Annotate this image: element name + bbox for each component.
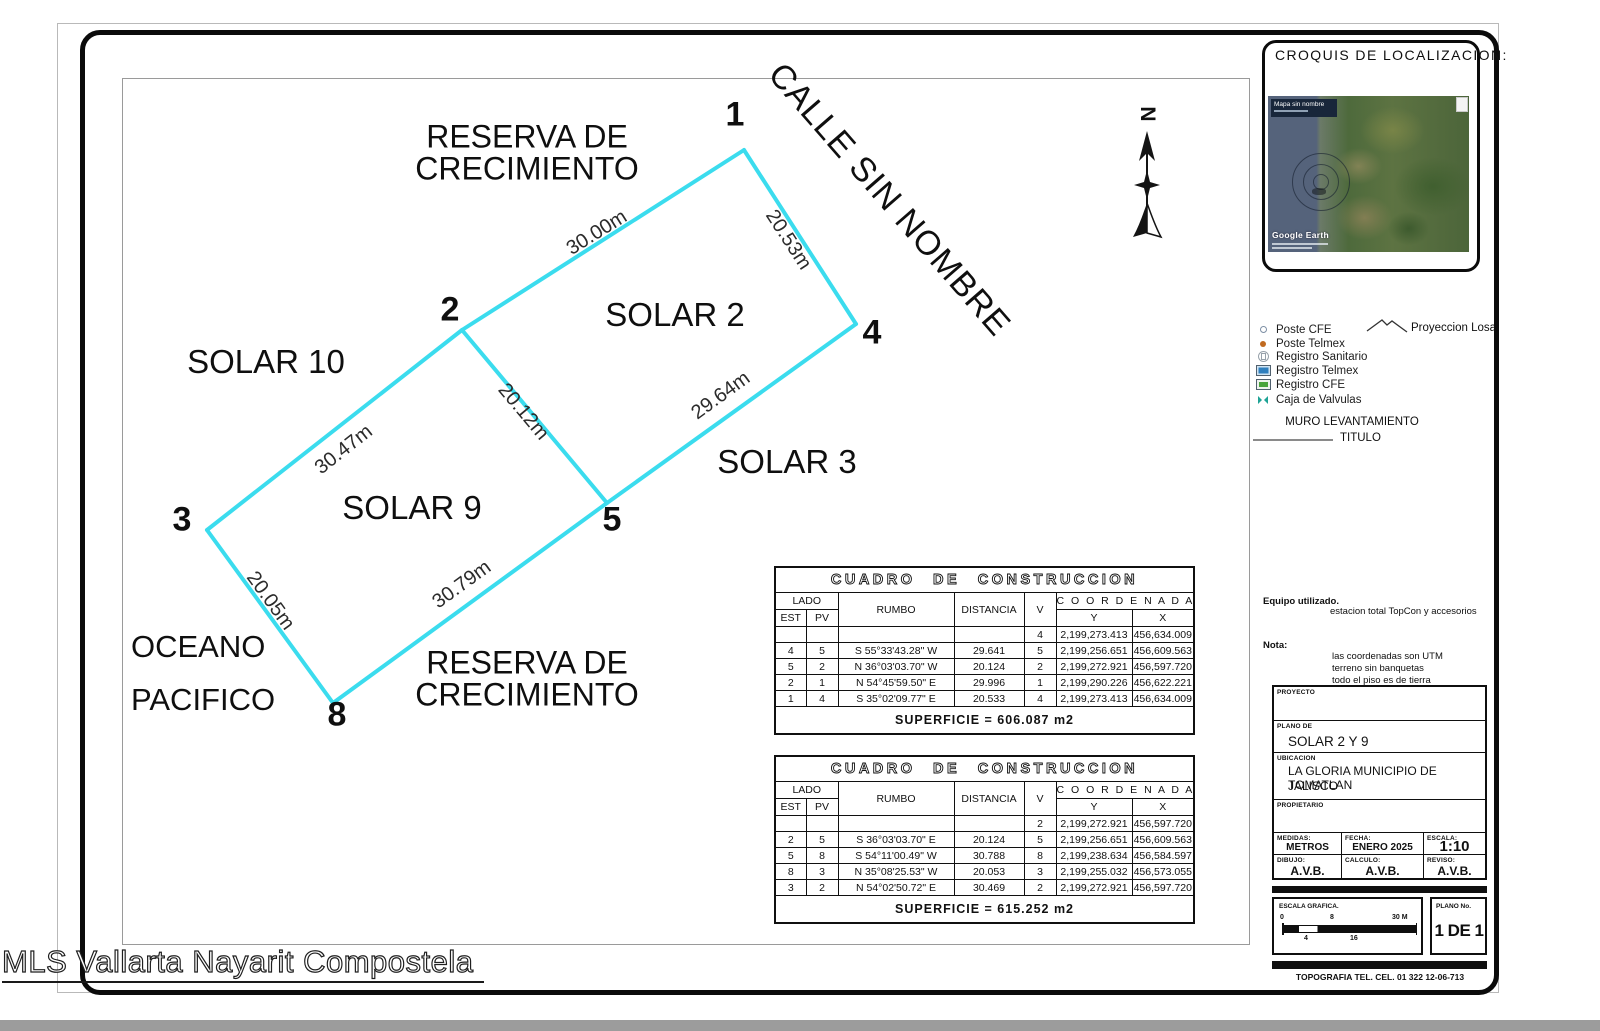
table-row: 3 2 N 54°02'50.72" E 30.469 2 2,199,272.… — [775, 880, 1194, 896]
table-row: 1 4 S 35°02'09.77" E 20.533 4 2,199,273.… — [775, 691, 1194, 707]
table-row: 5 8 S 54°11'00.49" W 30.788 8 2,199,238.… — [775, 848, 1194, 864]
oceano-label-line1: OCEANO — [131, 629, 265, 665]
cell-coord-x: 456,584.597 — [1132, 848, 1194, 864]
cell-est: 2 — [775, 675, 806, 691]
reserva-bottom-line2: CRECIMIENTO — [415, 677, 638, 714]
cell-pv: 3 — [806, 864, 838, 880]
vertex-2: 2 — [441, 291, 460, 330]
col-x: X — [1132, 799, 1194, 816]
col-y: Y — [1056, 610, 1132, 627]
cell-v: 2 — [1024, 816, 1056, 832]
cell-coord-y: 2,199,273.413 — [1056, 691, 1132, 707]
cell-pv: 8 — [806, 848, 838, 864]
table-row: 2 1 N 54°45'59.50" E 29.996 1 2,199,290.… — [775, 675, 1194, 691]
plano-de-value: SOLAR 2 Y 9 — [1288, 734, 1369, 749]
medidas-cell: MEDIDAS: METROS — [1274, 833, 1342, 854]
dibujo-calculo-reviso-row: DIBUJO: A.V.B. CALCULO: A.V.B. REVISO: A… — [1274, 855, 1485, 880]
col-lado: LADO — [775, 593, 838, 610]
nota-line1: las coordenadas son UTM — [1332, 651, 1443, 662]
registro-telmex-icon — [1250, 365, 1276, 376]
vertex-4: 4 — [863, 314, 882, 353]
cell-rumbo: N 36°03'03.70" W — [838, 659, 954, 675]
proyecto-row: PROYECTO — [1274, 687, 1485, 721]
cell-rumbo — [838, 627, 954, 643]
col-y: Y — [1056, 799, 1132, 816]
cell-coord-x: 456,597.720 — [1132, 816, 1194, 832]
cell-coord-y: 2,199,272.921 — [1056, 816, 1132, 832]
legend-caja-valvulas: Caja de Valvulas — [1250, 393, 1361, 406]
scale-bar — [1282, 925, 1417, 933]
cell-rumbo: S 54°11'00.49" W — [838, 848, 954, 864]
cell-pv: 2 — [806, 880, 838, 896]
col-est: EST — [775, 799, 806, 816]
cell-pv — [806, 627, 838, 643]
survey-plan-sheet: N RESERVA DE CRECIMIENTO CALLE SIN NOMBR… — [0, 0, 1600, 1031]
cell-est: 4 — [775, 643, 806, 659]
col-distancia: DISTANCIA — [954, 593, 1024, 627]
col-est: EST — [775, 610, 806, 627]
oceano-label-line2: PACIFICO — [131, 682, 275, 718]
cell-est: 5 — [775, 659, 806, 675]
superficie-total: SUPERFICIE = 606.087 m2 — [775, 707, 1194, 735]
legend-registro-cfe: Registro CFE — [1250, 378, 1345, 391]
legend-muro-levantamiento: MURO LEVANTAMIENTO — [1285, 416, 1419, 428]
cell-distancia: 20.533 — [954, 691, 1024, 707]
col-v: V — [1024, 782, 1056, 816]
col-pv: PV — [806, 610, 838, 627]
col-x: X — [1132, 610, 1194, 627]
col-lado: LADO — [775, 782, 838, 799]
escala-cell: ESCALA: 1:10 — [1424, 833, 1485, 854]
solar3-label: SOLAR 3 — [717, 443, 856, 481]
cell-rumbo: N 54°02'50.72" E — [838, 880, 954, 896]
cell-est: 5 — [775, 848, 806, 864]
cell-v: 3 — [1024, 864, 1056, 880]
dibujo-cell: DIBUJO: A.V.B. — [1274, 855, 1342, 880]
watermark: MLS Vallarta Nayarit Compostela — [2, 944, 484, 983]
cell-distancia: 20.053 — [954, 864, 1024, 880]
cell-rumbo: N 35°08'25.53" W — [838, 864, 954, 880]
reserva-top-line2: CRECIMIENTO — [415, 151, 638, 188]
vertex-8: 8 — [328, 696, 347, 735]
cell-coord-x: 456,609.563 — [1132, 832, 1194, 848]
solar9-label: SOLAR 9 — [342, 489, 481, 527]
cell-v: 4 — [1024, 691, 1056, 707]
cell-pv: 1 — [806, 675, 838, 691]
cell-pv: 5 — [806, 643, 838, 659]
table-row: 8 3 N 35°08'25.53" W 20.053 3 2,199,255.… — [775, 864, 1194, 880]
table-title: CUADRO DE CONSTRUCCION — [831, 572, 1138, 588]
col-rumbo: RUMBO — [838, 782, 954, 816]
divider-bar-bottom — [1272, 961, 1487, 969]
titulo-line — [1253, 439, 1333, 441]
calculo-cell: CALCULO: A.V.B. — [1342, 855, 1424, 880]
table-row: 4 2,199,273.413 456,634.009 — [775, 627, 1194, 643]
table-row: 4 5 S 55°33'43.28" W 29.641 5 2,199,256.… — [775, 643, 1194, 659]
cell-v: 5 — [1024, 832, 1056, 848]
cell-est: 2 — [775, 832, 806, 848]
cell-distancia: 30.788 — [954, 848, 1024, 864]
contact-line: TOPOGRAFIA TEL. CEL. 01 322 12-06-713 — [1296, 972, 1464, 982]
map-attribution-bar — [1272, 247, 1312, 249]
cell-distancia: 29.996 — [954, 675, 1024, 691]
north-letter: N — [1135, 106, 1159, 121]
cell-coord-x: 456,634.009 — [1132, 627, 1194, 643]
equipo-value: estacion total TopCon y accesorios — [1330, 606, 1477, 617]
registro-sanitario-icon — [1250, 351, 1276, 362]
coast-feature — [1312, 188, 1326, 195]
cell-coord-x: 456,622.221 — [1132, 675, 1194, 691]
cell-distancia: 20.124 — [954, 659, 1024, 675]
vertex-5: 5 — [603, 501, 622, 540]
cell-distancia: 30.469 — [954, 880, 1024, 896]
cell-est — [775, 816, 806, 832]
cell-est: 8 — [775, 864, 806, 880]
construction-table-1: CUADRO DE CONSTRUCCION LADO RUMBO DISTAN… — [774, 566, 1193, 735]
col-distancia: DISTANCIA — [954, 782, 1024, 816]
cell-est — [775, 627, 806, 643]
poste-telmex-icon — [1250, 341, 1276, 347]
nota-label: Nota: — [1263, 640, 1287, 651]
cell-distancia: 20.124 — [954, 832, 1024, 848]
vertex-3: 3 — [173, 501, 192, 540]
cell-distancia — [954, 816, 1024, 832]
caja-valvulas-icon — [1250, 395, 1276, 405]
equipo-label: Equipo utilizado. — [1263, 596, 1339, 607]
medidas-fecha-escala-row: MEDIDAS: METROS FECHA: ENERO 2025 ESCALA… — [1274, 833, 1485, 855]
satellite-map: Mapa sin nombre Google Earth — [1268, 96, 1469, 252]
ubicacion-value-line2: JALISCO — [1288, 779, 1338, 793]
table-title: CUADRO DE CONSTRUCCION — [831, 761, 1138, 777]
col-rumbo: RUMBO — [838, 593, 954, 627]
cell-coord-x: 456,597.720 — [1132, 880, 1194, 896]
cell-rumbo — [838, 816, 954, 832]
col-v: V — [1024, 593, 1056, 627]
cell-coord-y: 2,199,272.921 — [1056, 880, 1132, 896]
cell-coord-y: 2,199,290.226 — [1056, 675, 1132, 691]
cell-coord-y: 2,199,256.651 — [1056, 832, 1132, 848]
cell-v: 2 — [1024, 659, 1056, 675]
proyeccion-losa-icon — [1366, 317, 1408, 333]
cell-v: 5 — [1024, 643, 1056, 659]
cell-est: 1 — [775, 691, 806, 707]
legend-registro-telmex: Registro Telmex — [1250, 364, 1358, 377]
legend-titulo: TITULO — [1340, 432, 1381, 444]
cell-distancia: 29.641 — [954, 643, 1024, 659]
cell-v: 4 — [1024, 627, 1056, 643]
reviso-cell: REVISO: A.V.B. — [1424, 855, 1485, 880]
col-pv: PV — [806, 799, 838, 816]
cell-coord-y: 2,199,272.921 — [1056, 659, 1132, 675]
title-block: PROYECTO PLANO DE SOLAR 2 Y 9 UBICACION … — [1272, 685, 1487, 880]
map-corner-box — [1456, 97, 1468, 112]
croquis-title: CROQUIS DE LOCALIZACION: — [1275, 47, 1508, 63]
divider-bar-top — [1272, 886, 1487, 893]
cell-coord-x: 456,634.009 — [1132, 691, 1194, 707]
solar2-label: SOLAR 2 — [605, 296, 744, 334]
cell-rumbo: S 36°03'03.70" E — [838, 832, 954, 848]
legend-poste-cfe: Poste CFE — [1250, 323, 1332, 336]
fecha-cell: FECHA: ENERO 2025 — [1342, 833, 1424, 854]
cell-distancia — [954, 627, 1024, 643]
map-credit: Google Earth — [1272, 230, 1329, 240]
plano-de-row: PLANO DE SOLAR 2 Y 9 — [1274, 721, 1485, 753]
cell-pv: 2 — [806, 659, 838, 675]
cell-coord-y: 2,199,256.651 — [1056, 643, 1132, 659]
cell-v: 8 — [1024, 848, 1056, 864]
ubicacion-row: UBICACION LA GLORIA MUNICIPIO DE TOMATLA… — [1274, 753, 1485, 800]
legend-proyeccion-losa: Proyeccion Losa — [1411, 322, 1496, 334]
cell-pv: 4 — [806, 691, 838, 707]
cell-coord-x: 456,573.055 — [1132, 864, 1194, 880]
cell-coord-y: 2,199,238.634 — [1056, 848, 1132, 864]
solar10-label: SOLAR 10 — [187, 343, 345, 381]
construction-table-2: CUADRO DE CONSTRUCCION LADO RUMBO DISTAN… — [774, 755, 1193, 924]
map-name-badge: Mapa sin nombre — [1271, 99, 1337, 117]
cell-pv: 5 — [806, 832, 838, 848]
cell-rumbo: S 35°02'09.77" E — [838, 691, 954, 707]
vertex-1: 1 — [726, 96, 745, 135]
col-coordenadas: C O O R D E N A D A S — [1056, 782, 1194, 799]
plano-number-value: 1 DE 1 — [1435, 921, 1484, 941]
plano-number-box: PLANO No. 1 DE 1 — [1430, 897, 1487, 955]
cell-coord-y: 2,199,255.032 — [1056, 864, 1132, 880]
cell-coord-x: 456,597.720 — [1132, 659, 1194, 675]
table-row: 5 2 N 36°03'03.70" W 20.124 2 2,199,272.… — [775, 659, 1194, 675]
map-attribution-bar — [1272, 243, 1328, 245]
cell-coord-y: 2,199,273.413 — [1056, 627, 1132, 643]
superficie-total: SUPERFICIE = 615.252 m2 — [775, 896, 1194, 924]
nota-line2: terreno sin banquetas — [1332, 663, 1424, 674]
cell-est: 3 — [775, 880, 806, 896]
cell-coord-x: 456,609.563 — [1132, 643, 1194, 659]
bottom-gray-bar — [0, 1020, 1600, 1031]
poste-cfe-icon — [1250, 326, 1276, 333]
table-row: 2 5 S 36°03'03.70" E 20.124 5 2,199,256.… — [775, 832, 1194, 848]
graphic-scale-box: ESCALA GRAFICA. 0 8 30 M 4 16 — [1272, 897, 1423, 955]
propietario-row: PROPIETARIO — [1274, 800, 1485, 833]
registro-cfe-icon — [1250, 379, 1276, 390]
col-coordenadas: C O O R D E N A D A S — [1056, 593, 1194, 610]
legend-registro-sanitario: Registro Sanitario — [1250, 350, 1367, 363]
legend-poste-telmex: Poste Telmex — [1250, 337, 1345, 350]
cell-pv — [806, 816, 838, 832]
cell-rumbo: S 55°33'43.28" W — [838, 643, 954, 659]
cell-v: 1 — [1024, 675, 1056, 691]
cell-v: 2 — [1024, 880, 1056, 896]
cell-rumbo: N 54°45'59.50" E — [838, 675, 954, 691]
table-row: 2 2,199,272.921 456,597.720 — [775, 816, 1194, 832]
